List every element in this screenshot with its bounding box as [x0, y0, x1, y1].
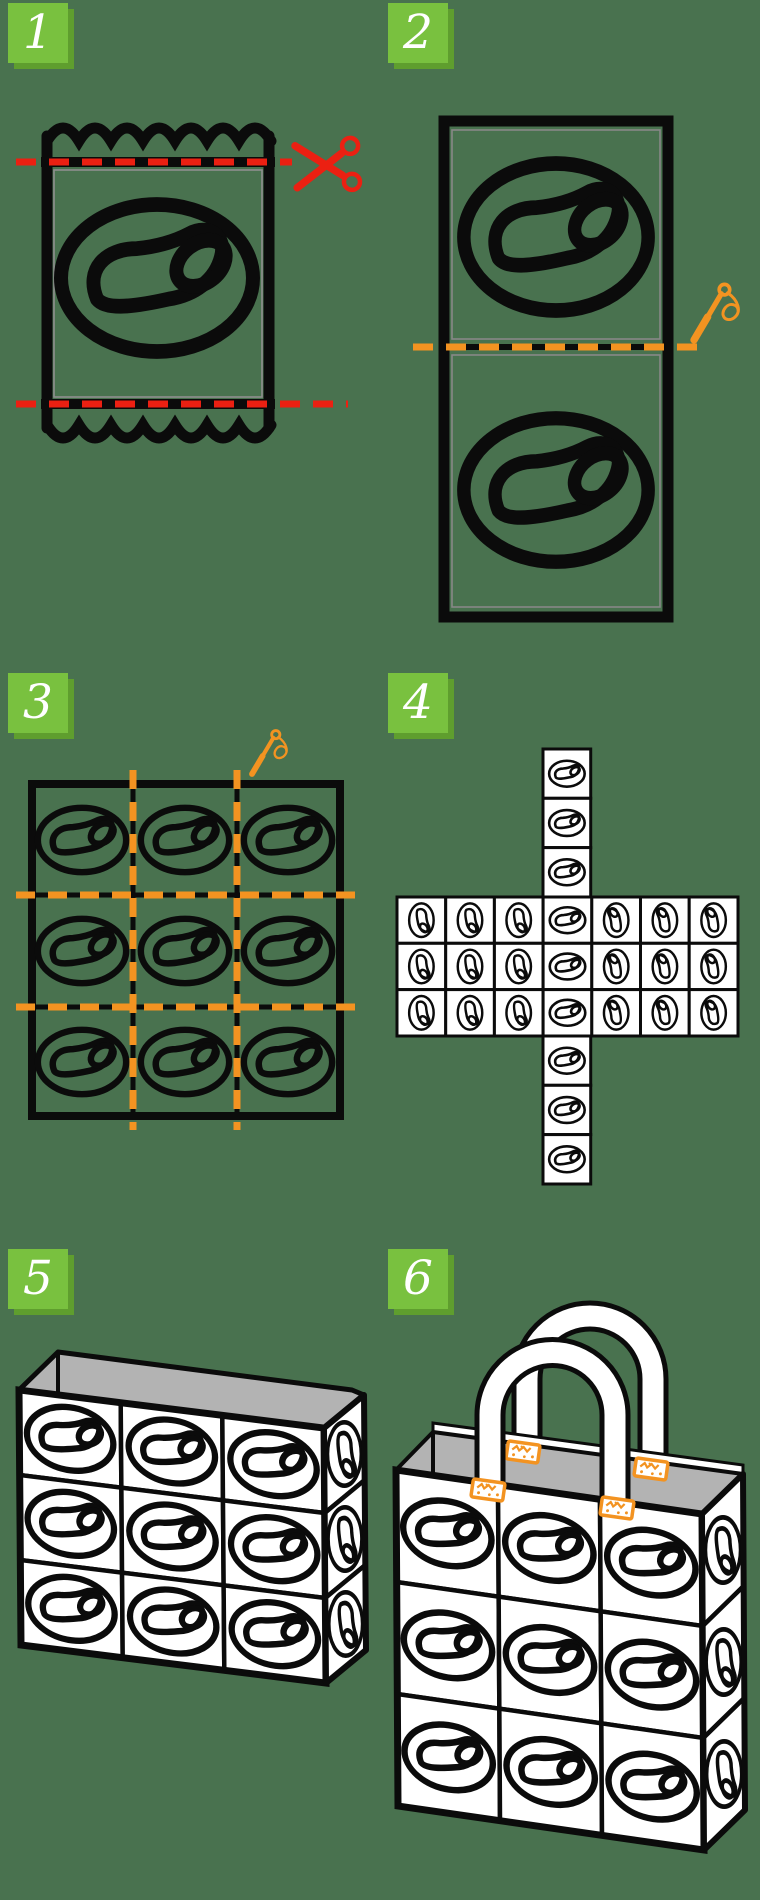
step-2-figure-sewing-two-panels [413, 121, 738, 617]
stitch-tab [600, 1497, 634, 1519]
pretzel-logo [38, 1030, 126, 1094]
box-front-face [19, 1390, 326, 1683]
needle-icon [252, 731, 287, 774]
pretzel-logo [464, 164, 648, 311]
diagram-canvas [0, 0, 760, 1900]
grid-internal-lines [32, 784, 340, 1116]
step-number: 2 [403, 3, 433, 63]
stitch-tab [506, 1441, 540, 1463]
step-1-badge: 1 [8, 3, 68, 63]
scissors-icon [295, 138, 361, 193]
step-6-figure-finished-bag [396, 1303, 745, 1850]
net-tiles [397, 749, 738, 1184]
step-5-badge: 5 [8, 1249, 68, 1309]
step-5-figure-open-box [19, 1352, 366, 1683]
grid-outline [32, 784, 340, 1116]
step-number: 6 [403, 1249, 433, 1309]
pretzel-logo [464, 418, 648, 562]
step-number: 1 [23, 3, 53, 63]
packet-crimped-top-edge [47, 128, 271, 141]
step-2-badge: 2 [388, 3, 448, 63]
pretzel-logo [38, 919, 126, 983]
needle-icon [694, 284, 738, 340]
pretzel-logo [61, 205, 253, 352]
step-number: 3 [23, 673, 53, 733]
step-1-figure-packet-cutting [16, 128, 360, 438]
step-number: 5 [23, 1249, 53, 1309]
pretzel-logo [244, 1030, 332, 1094]
instruction-sheet: 1 2 3 4 5 6 [0, 0, 760, 1900]
step-number: 4 [403, 673, 433, 733]
step-3-badge: 3 [8, 673, 68, 733]
stitch-tab [634, 1458, 668, 1480]
pretzel-logo [38, 808, 126, 872]
pretzel-logo [244, 808, 332, 872]
pretzel-logo [244, 919, 332, 983]
step-4-badge: 4 [388, 673, 448, 733]
stitch-tab [471, 1479, 505, 1501]
step-4-figure-box-net [397, 749, 738, 1184]
step-6-badge: 6 [388, 1249, 448, 1309]
pretzel-logo [141, 1030, 229, 1094]
step-3-figure-nine-panel-grid [16, 731, 356, 1130]
pretzel-logo [141, 919, 229, 983]
packet-crimped-bottom-edge [47, 425, 271, 438]
lower-panel-inner-border [452, 355, 660, 607]
sew-lines-horizontal [16, 895, 356, 1007]
bag-front-face [396, 1470, 704, 1850]
pretzel-logo [141, 808, 229, 872]
